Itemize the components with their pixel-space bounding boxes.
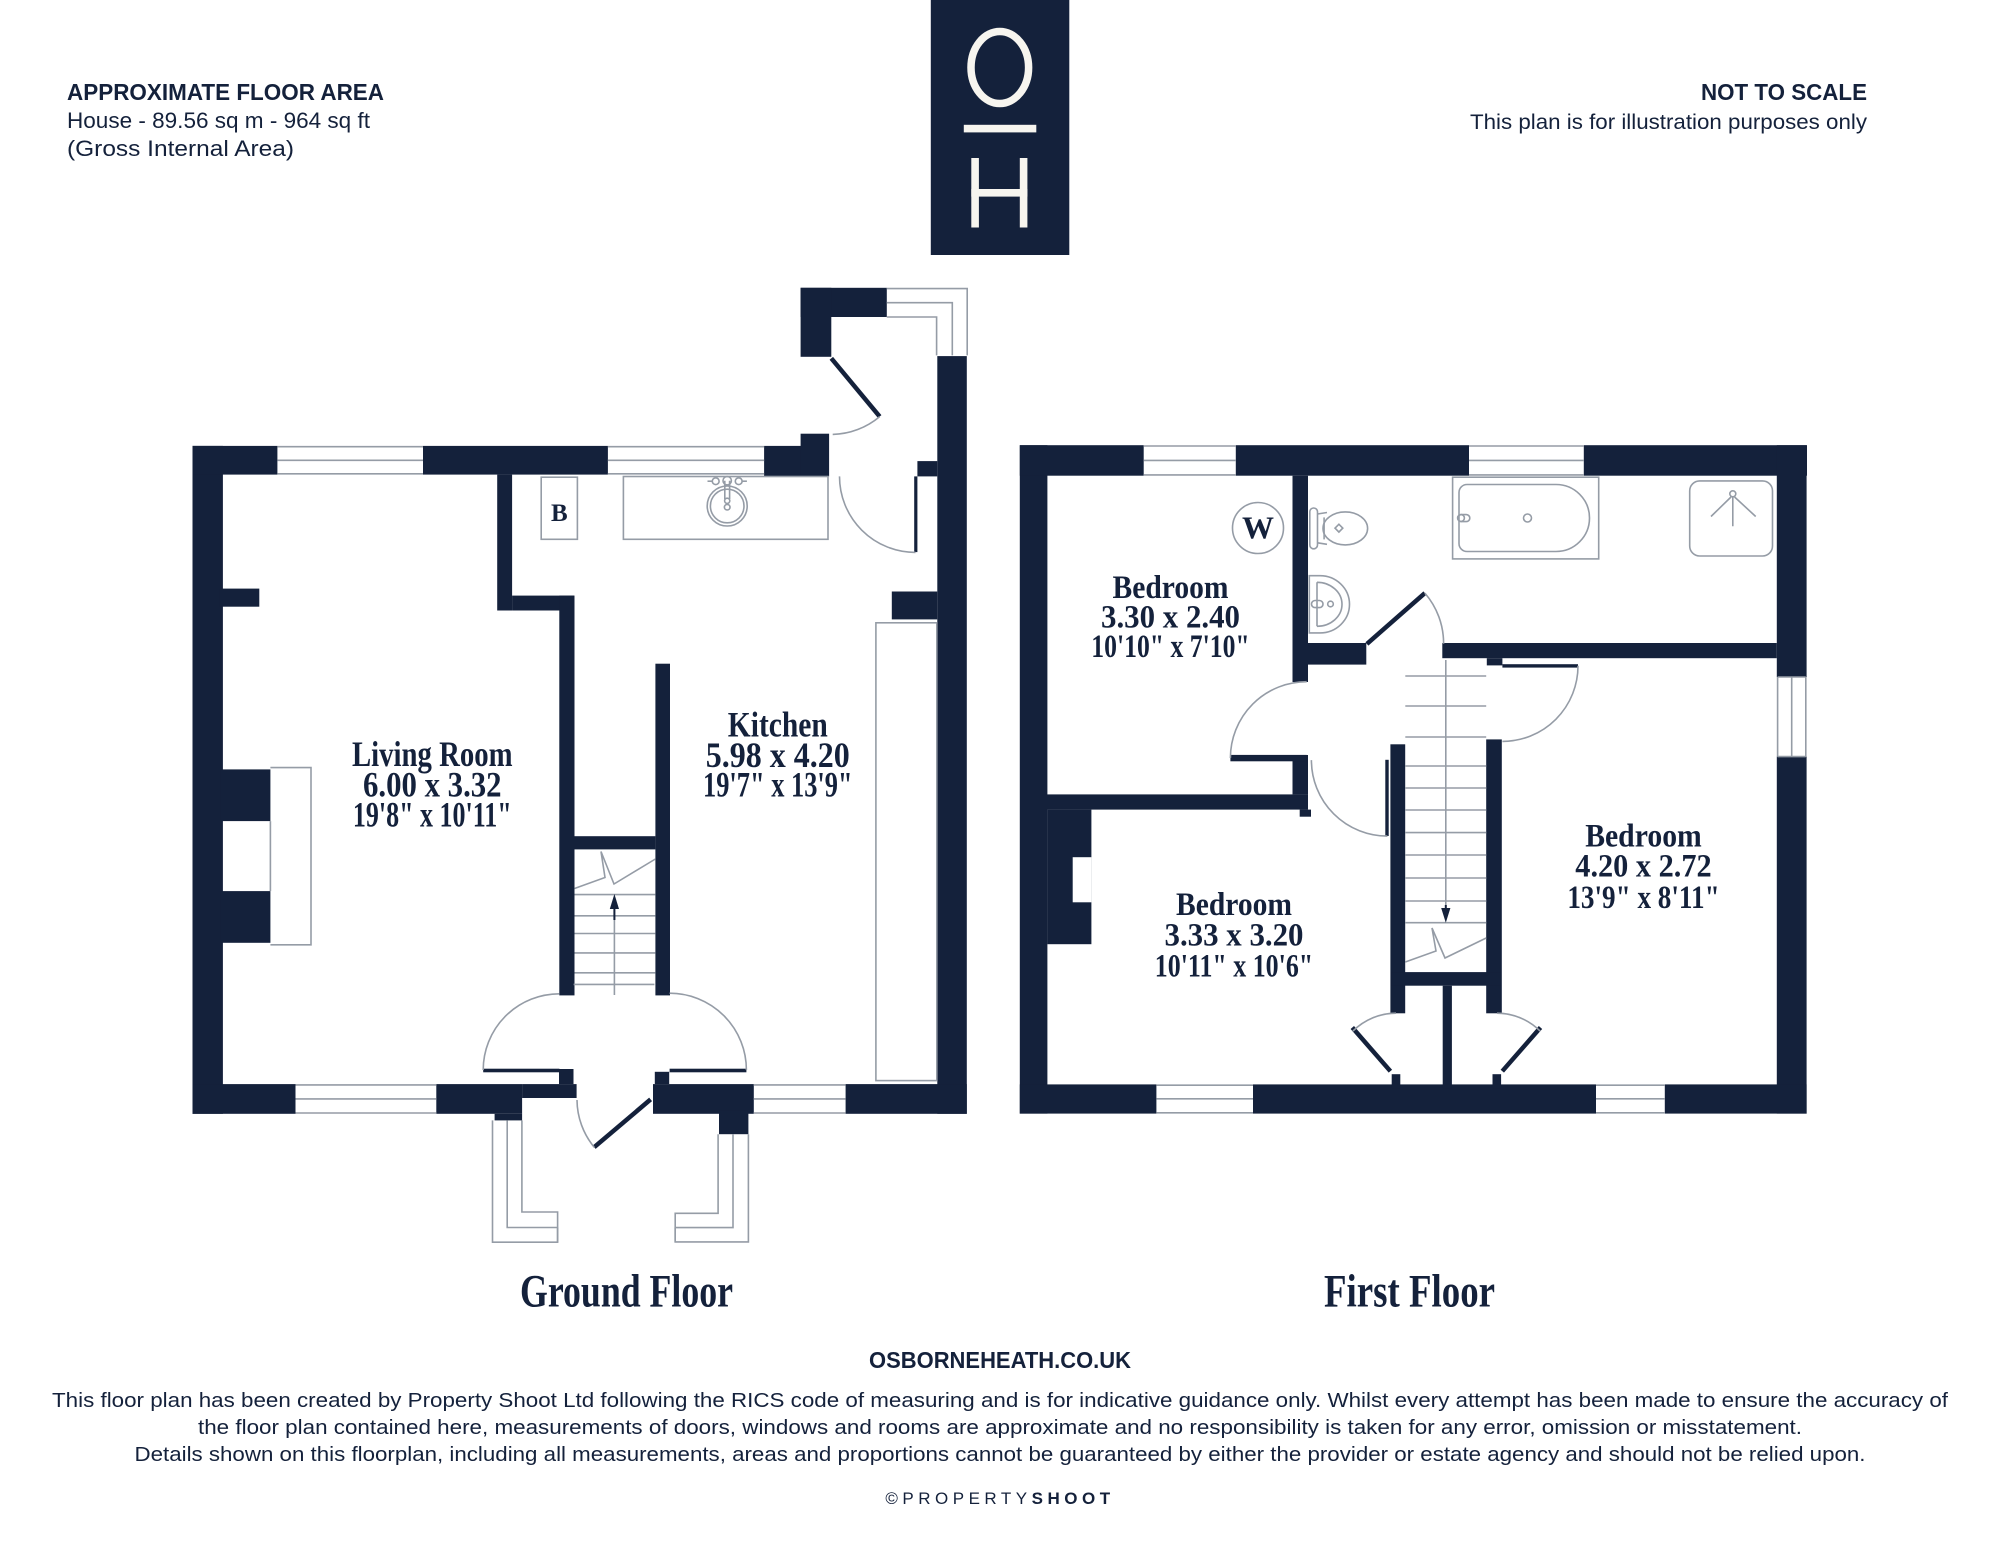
- svg-text:the floor plan contained here,: the floor plan contained here, measureme…: [198, 1416, 1802, 1439]
- svg-text:House - 89.56 sq m - 964 sq ft: House - 89.56 sq m - 964 sq ft: [67, 108, 370, 133]
- svg-text:Details shown on this floorpla: Details shown on this floorplan, includi…: [135, 1443, 1866, 1466]
- svg-text:B: B: [551, 500, 568, 527]
- svg-text:This floor plan has been creat: This floor plan has been created by Prop…: [52, 1389, 1948, 1412]
- svg-text:This plan is for illustration: This plan is for illustration purposes o…: [1470, 111, 1868, 134]
- svg-text:OSBORNEHEATH.CO.UK: OSBORNEHEATH.CO.UK: [869, 1347, 1131, 1373]
- svg-text:W: W: [1242, 510, 1274, 546]
- svg-text:APPROXIMATE FLOOR AREA: APPROXIMATE FLOOR AREA: [67, 79, 384, 105]
- svg-text:10'11" x 10'6": 10'11" x 10'6": [1155, 948, 1313, 984]
- svg-text:©PROPERTYSHOOT: ©PROPERTYSHOOT: [885, 1489, 1114, 1508]
- svg-text:(Gross Internal Area): (Gross Internal Area): [67, 136, 294, 161]
- svg-text:NOT TO SCALE: NOT TO SCALE: [1701, 79, 1867, 105]
- svg-text:10'10" x 7'10": 10'10" x 7'10": [1091, 629, 1249, 665]
- svg-text:Ground Floor: Ground Floor: [520, 1266, 733, 1318]
- svg-text:First Floor: First Floor: [1324, 1266, 1495, 1318]
- svg-text:13'9" x 8'11": 13'9" x 8'11": [1567, 880, 1719, 916]
- svg-text:19'8" x 10'11": 19'8" x 10'11": [353, 795, 512, 835]
- svg-text:19'7" x 13'9": 19'7" x 13'9": [703, 764, 853, 804]
